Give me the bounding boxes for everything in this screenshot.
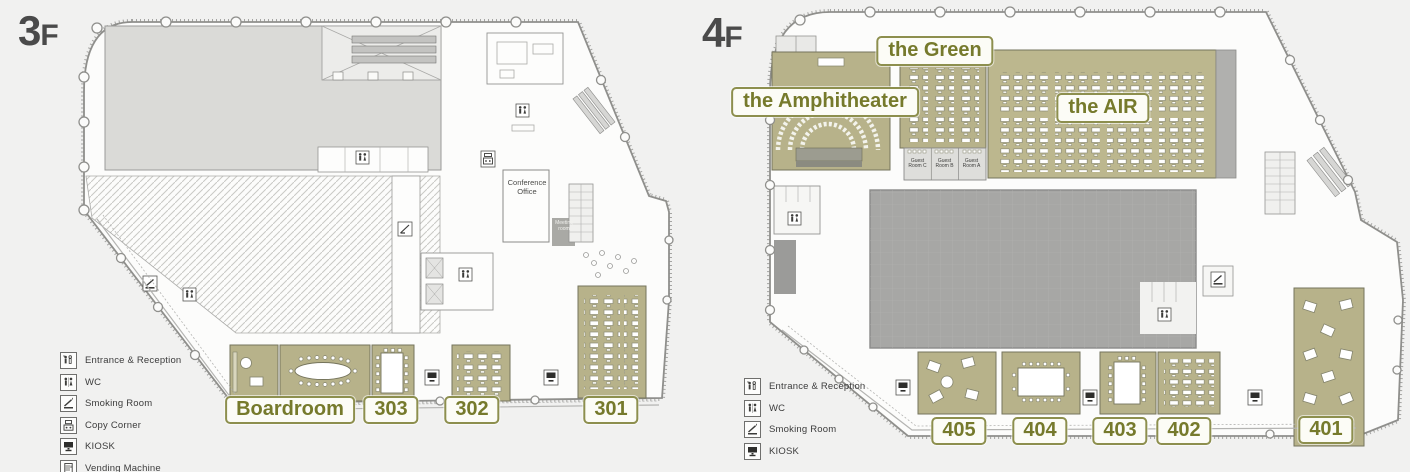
legend-item-entrance: Entrance & Reception <box>744 376 865 398</box>
kiosk-icon <box>425 370 439 385</box>
legend-label: Smoking Room <box>85 398 152 409</box>
kiosk-icon <box>60 438 77 455</box>
room-402 <box>1158 352 1220 414</box>
room-badge-403: 403 <box>1092 417 1147 445</box>
kiosk-icon <box>744 443 761 460</box>
guest-room-a-label: Guest Room A <box>958 159 985 170</box>
legend-item-copy: Copy Corner <box>60 415 181 437</box>
legend-label: Entrance & Reception <box>769 381 865 392</box>
wc-band-3f <box>318 147 428 172</box>
legend-label: Entrance & Reception <box>85 355 181 366</box>
area-badge-the-green: the Green <box>876 36 993 66</box>
kiosk-icon <box>1248 390 1262 405</box>
area-badge-the-amphitheater: the Amphitheater <box>731 87 919 117</box>
kiosk-icon <box>896 380 910 395</box>
room-405 <box>918 352 996 414</box>
legend-item-vending: Vending Machine <box>60 458 181 472</box>
copy-icon <box>481 151 495 167</box>
smoking-icon <box>60 395 77 412</box>
room-badge-301: 301 <box>583 396 638 424</box>
legend-label: KIOSK <box>85 441 115 452</box>
wc-icon <box>60 374 77 391</box>
center-hall-4f <box>870 190 1196 348</box>
area-badge-the-air: the AIR <box>1056 93 1149 123</box>
escalator-icon <box>398 222 412 236</box>
legend-3f: Entrance & Reception WC Smoking Room Cop… <box>60 350 181 472</box>
legend-item-kiosk: KIOSK <box>744 441 865 463</box>
room-boardroom <box>280 345 370 401</box>
legend-item-smoking: Smoking Room <box>60 393 181 415</box>
room-404 <box>1002 352 1080 414</box>
smoking-room-4f <box>1203 266 1233 296</box>
entrance-icon <box>60 352 77 369</box>
guest-room-b-label: Guest Room B <box>931 159 958 170</box>
wc-icon <box>744 400 761 417</box>
legend-item-entrance: Entrance & Reception <box>60 350 181 372</box>
legend-label: Smoking Room <box>769 424 836 435</box>
room-badge-402: 402 <box>1156 417 1211 445</box>
room-badge-boardroom: Boardroom <box>225 396 355 424</box>
kiosk-icon <box>544 370 558 385</box>
guest-room-c-label: Guest Room C <box>904 159 931 170</box>
room-301 <box>578 286 646 398</box>
wc-icon <box>459 268 472 281</box>
legend-label: Vending Machine <box>85 463 161 472</box>
entrance-icon <box>744 378 761 395</box>
room-lounge-3f <box>230 345 278 401</box>
room-badge-302: 302 <box>444 396 499 424</box>
legend-item-wc: WC <box>744 398 865 420</box>
meeting-room-label: Meeting room <box>552 221 576 232</box>
conference-office-label: Conference Office <box>503 178 551 197</box>
vending-icon <box>60 460 77 472</box>
legend-label: Copy Corner <box>85 420 141 431</box>
legend-item-kiosk: KIOSK <box>60 436 181 458</box>
room-badge-405: 405 <box>931 417 986 445</box>
wc-icon <box>788 212 801 225</box>
room-302 <box>452 345 510 401</box>
wc-icon <box>183 288 196 301</box>
legend-4f: Entrance & Reception WC Smoking Room KIO… <box>744 376 865 462</box>
legend-label: KIOSK <box>769 446 799 457</box>
legend-item-smoking: Smoking Room <box>744 419 865 441</box>
room-303 <box>372 345 414 401</box>
room-badge-404: 404 <box>1012 417 1067 445</box>
room-badge-303: 303 <box>363 396 418 424</box>
room-403 <box>1100 352 1156 414</box>
wc-icon <box>356 151 369 164</box>
smoking-icon <box>744 421 761 438</box>
floor-plan-page: 3F <box>0 0 1410 472</box>
legend-label: WC <box>85 377 101 388</box>
hatched-area-3f <box>86 176 440 333</box>
legend-item-wc: WC <box>60 372 181 394</box>
copy-icon <box>60 417 77 434</box>
wc-icon <box>1158 308 1171 321</box>
kiosk-icon <box>1083 390 1097 405</box>
wc-icon <box>516 104 529 117</box>
room-badge-401: 401 <box>1298 416 1353 444</box>
smoking-icon <box>1211 272 1225 287</box>
legend-label: WC <box>769 403 785 414</box>
